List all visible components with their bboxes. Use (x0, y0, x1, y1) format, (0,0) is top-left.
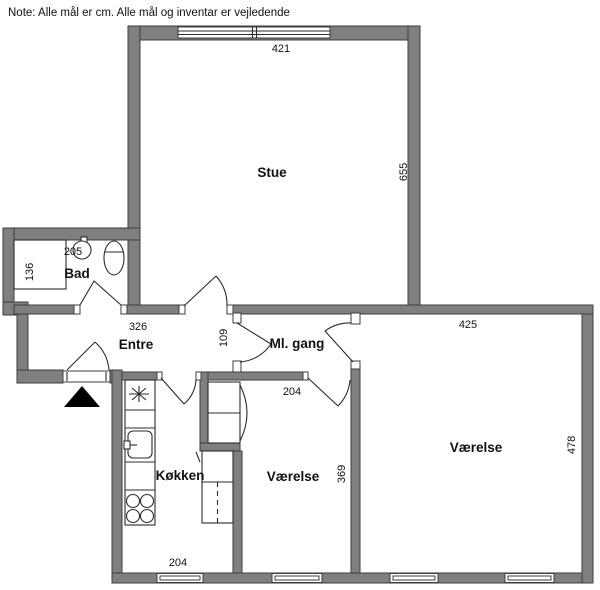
wall-left-lower (17, 314, 28, 376)
wall-kitchen-mid-lower (233, 451, 242, 573)
closet-door-arc (240, 385, 247, 441)
dim-stue-height: 655 (398, 163, 410, 181)
door-kitchen (161, 378, 196, 404)
wall-band-mlgang-top (227, 305, 593, 314)
wall-entre-bottom-left (17, 370, 63, 383)
entrance-arrow-icon (64, 386, 100, 407)
dim-vaerelse-right-height: 478 (566, 436, 578, 454)
door-vaerelse-right (325, 323, 353, 362)
label-mlgang: Ml. gang (270, 336, 325, 351)
dim-stue-width: 421 (272, 43, 290, 55)
label-entre: Entre (119, 337, 154, 352)
dim-vaerelse-mid-width: 204 (283, 386, 301, 398)
floor-plan-page: Note: Alle mål er cm. Alle mål og invent… (0, 0, 600, 590)
window-midroom-bottom (272, 574, 322, 583)
dim-vaerelse-right-width: 425 (459, 319, 477, 331)
stub-mlgang-top (233, 313, 241, 323)
fan-symbol-icon (129, 386, 149, 402)
wall-vaerelse-right-left (351, 368, 360, 573)
jamb-bad-left (74, 305, 80, 314)
wall-kitchen-mid-upper (200, 372, 208, 451)
wall-kitchen-left (112, 370, 122, 583)
wall-bad-top (3, 228, 140, 240)
window-vaerelse-bottom-1 (390, 574, 438, 583)
label-vaerelse-mid: Værelse (267, 469, 320, 484)
dim-bad-depth: 136 (24, 263, 36, 281)
label-stue: Stue (257, 165, 287, 180)
dim-bad-width: 205 (64, 246, 82, 258)
dim-mlgang-opening: 109 (218, 329, 230, 347)
walls (3, 26, 593, 583)
wall-kitchen-top-left (122, 372, 162, 380)
wall-right (582, 305, 593, 583)
wall-kitchen-mid-jog (200, 443, 240, 451)
wall-stue-left (128, 26, 140, 314)
stub-vaerelse-right-top (351, 313, 360, 324)
window-vaerelse-bottom-2 (505, 574, 554, 583)
door-entrance (63, 342, 110, 382)
kitchen-counter-right (202, 451, 233, 523)
label-koekken: Køkken (156, 468, 205, 483)
dim-koekken-width: 204 (169, 557, 187, 569)
wall-mlgang-bottom (196, 372, 308, 380)
wall-band-entre-top (121, 305, 185, 314)
door-bad (80, 281, 121, 305)
jamb-midroom-left (303, 372, 308, 380)
jamb-bad-right (121, 305, 127, 314)
window-stue-top (178, 27, 330, 38)
label-vaerelse-right: Værelse (450, 440, 503, 455)
jamb-stue-left (179, 305, 185, 314)
stub-mlgang-bottom (233, 361, 241, 372)
floor-plan: Note: Alle mål er cm. Alle mål og invent… (0, 0, 600, 590)
jamb-vaerelse-right-bottom (351, 361, 360, 369)
leader-tick (196, 452, 200, 462)
window-kitchen-bottom (157, 574, 203, 583)
dim-entre-width: 326 (129, 321, 147, 333)
door-entre-mlgang (237, 323, 271, 362)
kitchen-sink-icon (124, 431, 152, 458)
toilet-icon (104, 241, 124, 275)
shower-icon (14, 240, 66, 289)
door-stue (184, 276, 227, 306)
wall-band-bad-bottom (14, 305, 80, 314)
note-text: Note: Alle mål er cm. Alle mål og invent… (8, 7, 290, 19)
midroom-closet (208, 382, 247, 443)
jamb-stue-right (227, 305, 233, 314)
door-vaerelse-mid (308, 378, 350, 406)
label-bad: Bad (64, 266, 90, 281)
jamb-kitchen-right (196, 372, 201, 380)
dim-vaerelse-mid-height: 369 (336, 465, 348, 483)
